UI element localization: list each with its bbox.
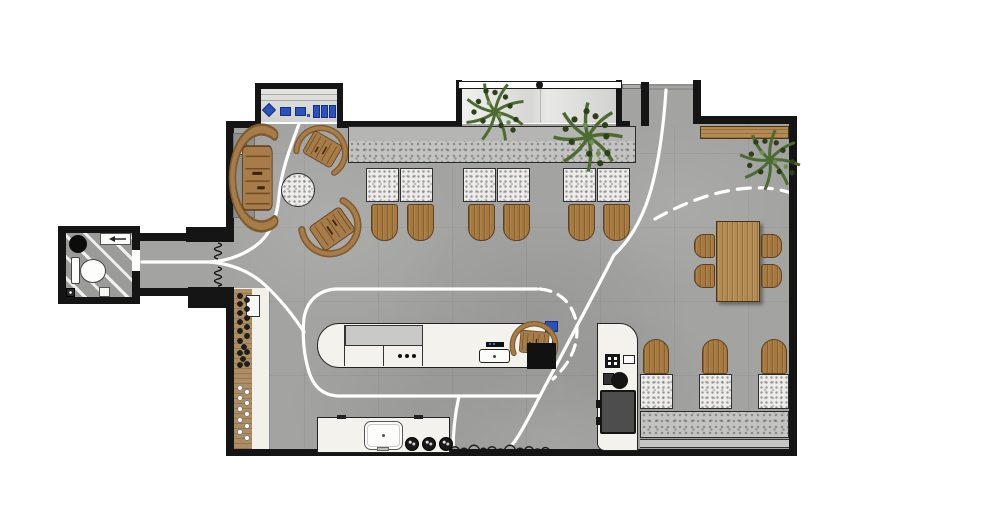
bay-plant: [547, 96, 630, 179]
corner-plant: [735, 125, 805, 195]
host-side-table: [527, 343, 556, 369]
shelf-bottles-light: [238, 386, 250, 441]
lounge-chair: [294, 119, 354, 174]
shelf-bottles-dark: [237, 293, 249, 367]
bay-plant: [467, 84, 524, 141]
floor-plan: [0, 0, 1000, 530]
lounge-chair: [232, 130, 274, 227]
lounge-chair: [299, 199, 369, 265]
furniture-overlay: [0, 0, 1000, 530]
dispenser-arrow-icon: [109, 236, 126, 242]
